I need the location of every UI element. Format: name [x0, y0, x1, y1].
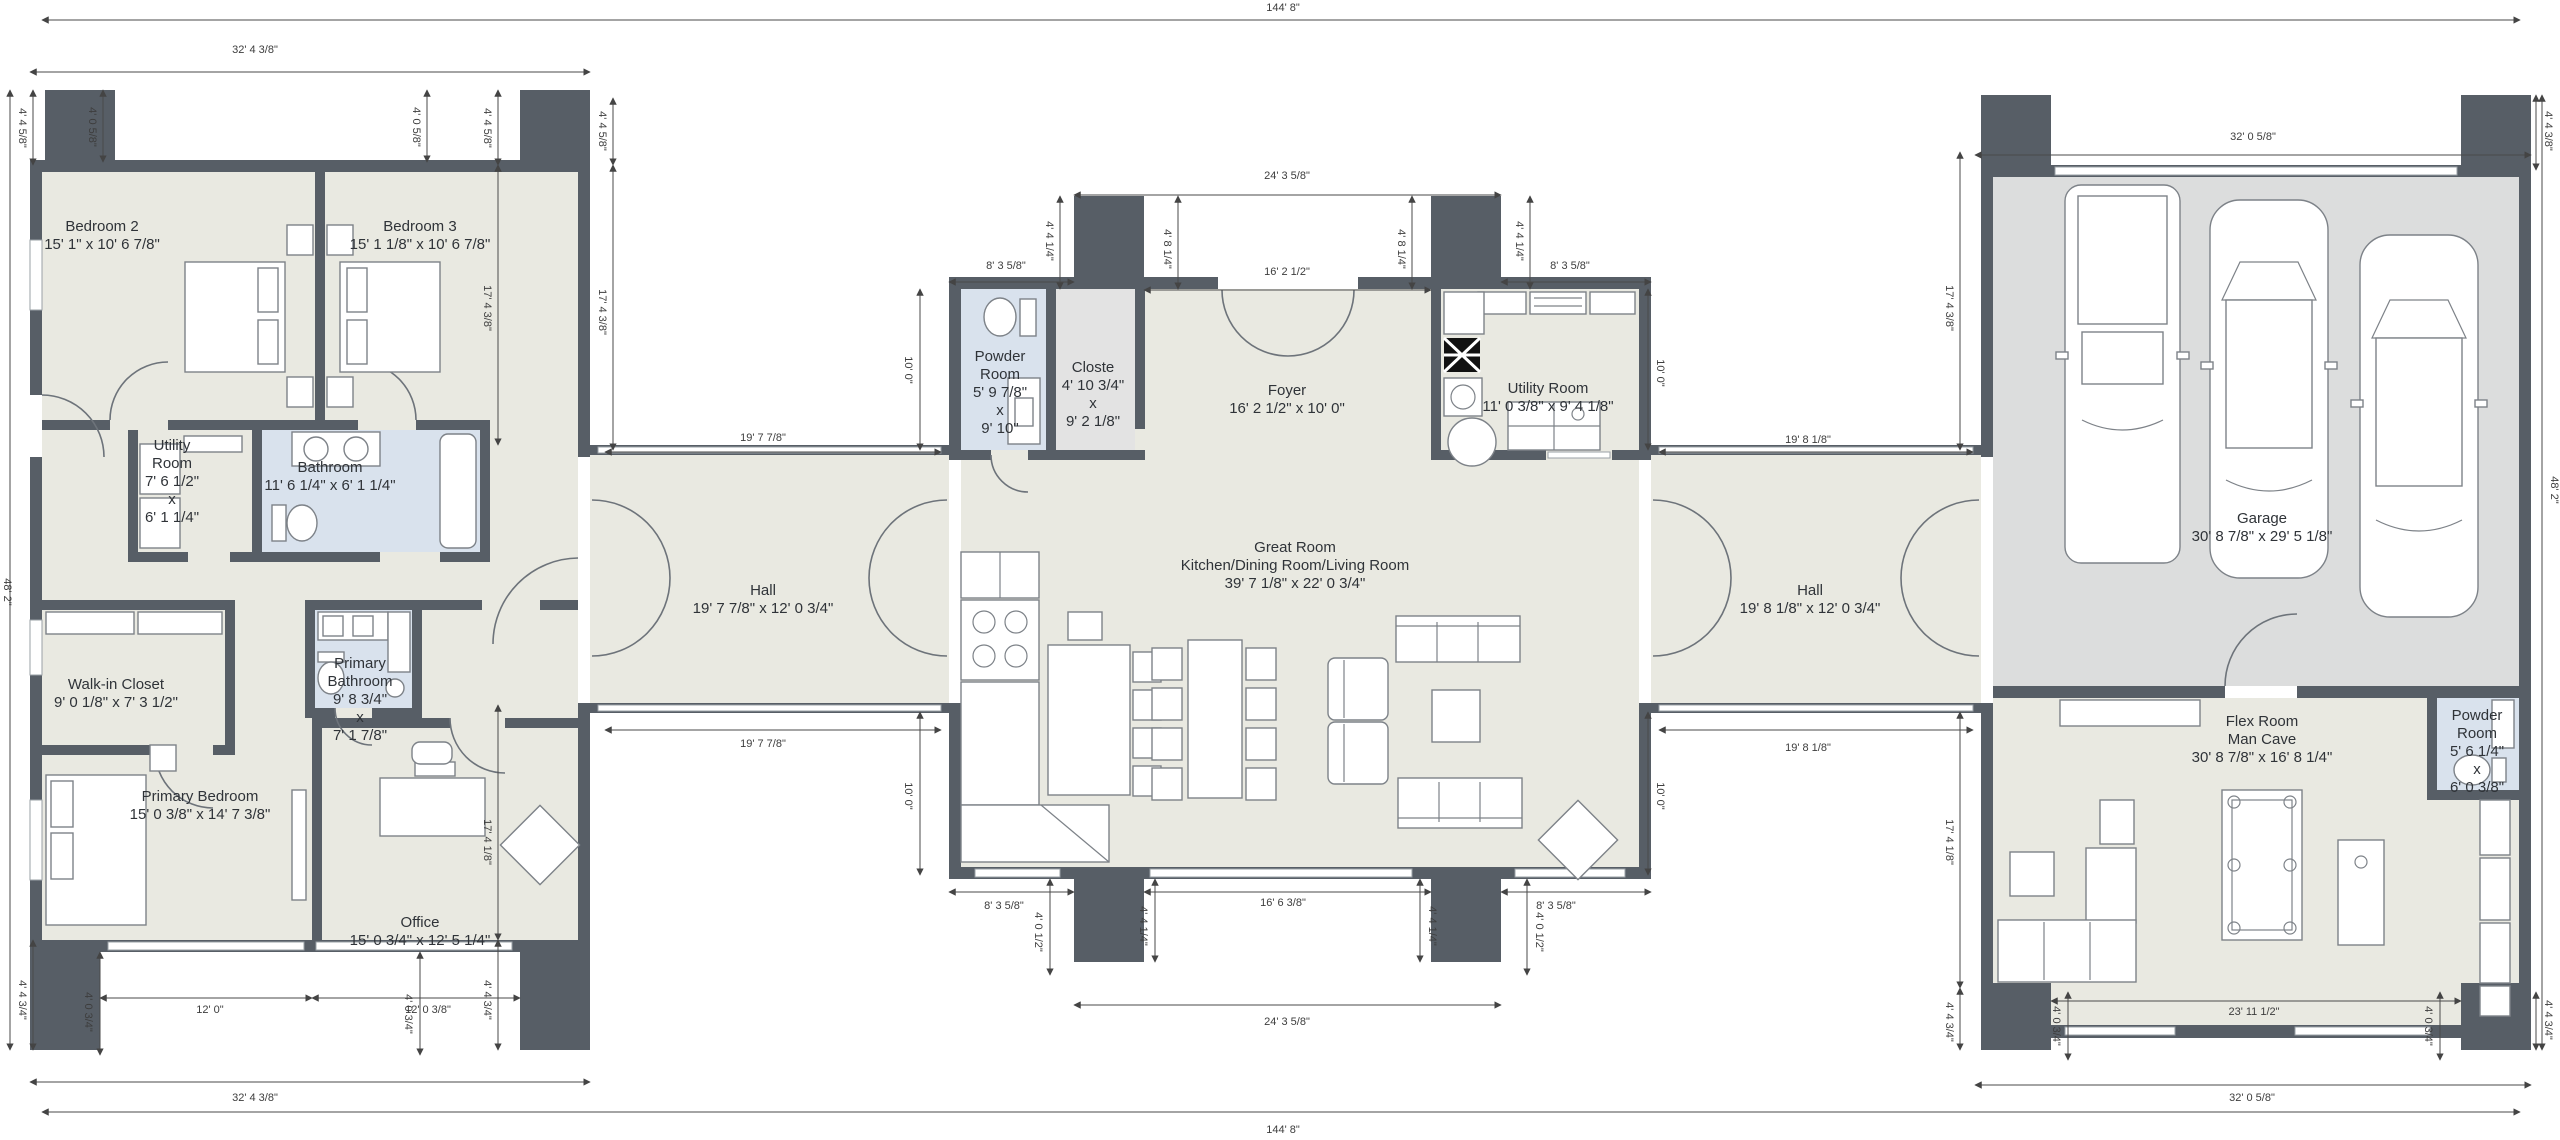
room-label-line: Walk-in Closet [54, 676, 178, 694]
window [30, 620, 42, 675]
toilet-tank [272, 505, 286, 541]
dimension-label: 48' 2" [2548, 476, 2560, 503]
car-truck [2056, 185, 2189, 563]
room-label-line: 15' 1" x 10' 6 7/8" [44, 236, 160, 254]
dimension-label: 4' 4 3/4" [16, 980, 28, 1020]
car-sedan [2351, 235, 2487, 617]
dimension-label: 19' 8 1/8" [1785, 434, 1831, 446]
island [1048, 645, 1130, 795]
room-label-line: Primary Bedroom [130, 788, 271, 806]
dimension-label: 4' 0 3/4" [2422, 1006, 2434, 1046]
room-label-line: 6' 0 3/8" [2450, 779, 2504, 797]
room-label-flex-room: Flex RoomMan Cave30' 8 7/8" x 16' 8 1/4" [2192, 713, 2333, 767]
room-label-line: x [1062, 395, 1124, 413]
stool [1068, 612, 1102, 640]
room-label-bathroom: Bathroom11' 6 1/4" x 6' 1 1/4" [264, 459, 395, 495]
room-label-powder-room-right: PowderRoom5' 6 1/4"x6' 0 3/8" [2450, 707, 2504, 797]
dimension-label: 4' 4 1/4" [1426, 906, 1438, 946]
sliding-door [1150, 869, 1412, 877]
room-label-line: 30' 8 7/8" x 16' 8 1/4" [2192, 749, 2333, 767]
room-label-line: Room [145, 455, 199, 473]
garage-door [2055, 167, 2457, 175]
dimension-label: 24' 3 5/8" [1264, 170, 1310, 182]
office-chair [412, 742, 452, 764]
dimension-label: 12' 0 3/8" [405, 1004, 451, 1016]
toilet-tank [1020, 299, 1036, 336]
chair [1246, 728, 1276, 760]
dining-table [1188, 640, 1242, 798]
nightstand [287, 225, 313, 255]
room-label-great-room: Great RoomKitchen/Dining Room/Living Roo… [1181, 539, 1409, 593]
room-label-line: 7' 6 1/2" [145, 473, 199, 491]
room-label-line: 9' 10" [973, 420, 1027, 438]
sofa [1396, 616, 1520, 662]
dimension-label: 4' 4 1/4" [1513, 221, 1525, 261]
room-label-primary-bathroom: PrimaryBathroom9' 8 3/4"x7' 1 7/8" [327, 655, 392, 745]
room-label-line: 5' 6 1/4" [2450, 743, 2504, 761]
floor-plan: Bedroom 215' 1" x 10' 6 7/8"Bedroom 315'… [0, 0, 2560, 1140]
toilet [984, 298, 1016, 336]
sink [304, 437, 328, 461]
room-label-utility-room-center: Utility Room11' 0 3/8" x 9' 4 1/8" [1482, 380, 1613, 416]
dimension-label: 4' 4 3/4" [1943, 1002, 1955, 1042]
sink [323, 616, 343, 636]
room-label-line: Utility [145, 437, 199, 455]
room-label-line: 19' 7 7/8" x 12' 0 3/4" [693, 600, 834, 618]
recliner [1328, 722, 1388, 784]
room-label-line: Flex Room [2192, 713, 2333, 731]
room-label-line: Room [2450, 725, 2504, 743]
room-label-line: Hall [1740, 582, 1881, 600]
landing-step [2060, 700, 2200, 726]
room-label-line: Hall [693, 582, 834, 600]
counter [961, 682, 1039, 805]
room-label-line: Powder [973, 348, 1027, 366]
room-label-line: 15' 0 3/8" x 14' 7 3/8" [130, 806, 271, 824]
hall-right-window [1659, 705, 1973, 711]
window [2065, 1027, 2175, 1035]
room-label-line: 6' 1 1/4" [145, 509, 199, 527]
room-label-line: 5' 9 7/8" [973, 384, 1027, 402]
room-label-line: 11' 0 3/8" x 9' 4 1/8" [1482, 398, 1613, 416]
dimension-label: 4' 8 1/4" [1161, 229, 1173, 269]
recliner [1328, 658, 1388, 720]
dimension-label: 17' 4 3/8" [1943, 285, 1955, 331]
dimension-label: 4' 4 5/8" [481, 108, 493, 148]
dimension-label: 8' 3 5/8" [984, 900, 1024, 912]
room-label-line: x [973, 402, 1027, 420]
sink [344, 437, 368, 461]
dimension-label: 24' 3 5/8" [1264, 1016, 1310, 1028]
nightstand [327, 377, 353, 407]
dimension-label: 4' 4 5/8" [16, 108, 28, 148]
dimension-label: 16' 6 3/8" [1260, 897, 1306, 909]
dimension-label: 4' 0 1/2" [1032, 912, 1044, 952]
room-label-bedroom-3: Bedroom 315' 1 1/8" x 10' 6 7/8" [350, 218, 491, 254]
side-table [2010, 852, 2054, 896]
dimension-label: 10' 0" [1654, 359, 1666, 386]
room-label-line: 19' 8 1/8" x 12' 0 3/4" [1740, 600, 1881, 618]
desk [380, 778, 485, 836]
wardrobe [46, 612, 134, 634]
room-label-line: 30' 8 7/8" x 29' 5 1/8" [2192, 528, 2333, 546]
sink [353, 616, 373, 636]
room-label-line: 11' 6 1/4" x 6' 1 1/4" [264, 477, 395, 495]
chair [1152, 648, 1182, 680]
room-label-line: Bathroom [264, 459, 395, 477]
chair [1246, 648, 1276, 680]
sofa [1398, 778, 1522, 828]
room-label-line: x [2450, 761, 2504, 779]
dimension-label: 4' 0 3/4" [82, 992, 94, 1032]
room-label-line: Bathroom [327, 673, 392, 691]
room-label-line: Great Room [1181, 539, 1409, 557]
room-label-walk-in-closet: Walk-in Closet9' 0 1/8" x 7' 3 1/2" [54, 676, 178, 712]
dresser [292, 790, 306, 900]
nightstand [150, 745, 176, 771]
dimension-label: 4' 4 5/8" [596, 111, 608, 151]
room-label-line: Room [973, 366, 1027, 384]
chair [1152, 728, 1182, 760]
dimension-label: 4' 4 3/8" [2542, 111, 2554, 151]
dimension-label: 10' 0" [902, 356, 914, 383]
cabinet [2480, 858, 2510, 920]
room-label-hall-left: Hall19' 7 7/8" x 12' 0 3/4" [693, 582, 834, 618]
washer [1444, 378, 1482, 416]
coffee-table [1432, 690, 1480, 742]
sectional-sofa [1998, 920, 2136, 982]
room-label-line: Man Cave [2192, 731, 2333, 749]
room-label-line: Kitchen/Dining Room/Living Room [1181, 557, 1409, 575]
room-label-line: 39' 7 1/8" x 22' 0 3/4" [1181, 575, 1409, 593]
room-label-line: Office [350, 914, 491, 932]
chair [1246, 768, 1276, 800]
dimension-label: 10' 0" [902, 782, 914, 809]
nightstand [287, 377, 313, 407]
sliding-door [2295, 1027, 2430, 1035]
room-label-line: Utility Room [1482, 380, 1613, 398]
room-label-line: 4' 10 3/4" [1062, 377, 1124, 395]
water-heater [1448, 418, 1496, 466]
room-label-powder-room-center: PowderRoom5' 9 7/8"x9' 10" [973, 348, 1027, 438]
room-label-line: x [145, 491, 199, 509]
room-label-line: x [327, 709, 392, 727]
room-label-foyer: Foyer16' 2 1/2" x 10' 0" [1229, 382, 1345, 418]
dimension-label: 4' 0 3/4" [2050, 1006, 2062, 1046]
cabinet [2480, 923, 2510, 983]
dimension-label: 32' 0 5/8" [2229, 1092, 2275, 1104]
dimension-label: 19' 7 7/8" [740, 432, 786, 444]
room-label-line: Bedroom 2 [44, 218, 160, 236]
range [961, 600, 1039, 680]
dimension-label: 23' 11 1/2" [2228, 1006, 2279, 1018]
window [30, 800, 42, 880]
dimension-label: 8' 3 5/8" [1550, 260, 1590, 272]
dimension-label: 12' 0" [196, 1004, 223, 1016]
dimension-label: 16' 2 1/2" [1264, 266, 1310, 278]
chair [1152, 688, 1182, 720]
pool-table [2222, 790, 2302, 940]
dimension-label: 144' 8" [1266, 1124, 1300, 1136]
room-label-line: 15' 1 1/8" x 10' 6 7/8" [350, 236, 491, 254]
dimension-label: 4' 4 3/4" [2542, 1000, 2554, 1040]
hall-left-window [598, 705, 941, 711]
room-label-line: 15' 0 3/4" x 12' 5 1/4" [350, 932, 491, 950]
dimension-label: 8' 3 5/8" [986, 260, 1026, 272]
dimension-label: 32' 4 3/8" [232, 1092, 278, 1104]
dimension-label: 17' 4 1/8" [1943, 819, 1955, 865]
dimension-label: 144' 8" [1266, 2, 1300, 14]
room-label-line: 7' 1 7/8" [327, 727, 392, 745]
room-label-line: 9' 0 1/8" x 7' 3 1/2" [54, 694, 178, 712]
dimension-label: 32' 0 5/8" [2230, 131, 2276, 143]
dimension-label: 19' 8 1/8" [1785, 742, 1831, 754]
entry-door-gap [30, 395, 42, 457]
room-label-utility-room-left: UtilityRoom7' 6 1/2"x6' 1 1/4" [145, 437, 199, 527]
dimension-label: 17' 4 3/8" [596, 289, 608, 335]
room-label-closte: Closte4' 10 3/4"x9' 2 1/8" [1062, 359, 1124, 431]
dimension-label: 4' 4 1/4" [1137, 906, 1149, 946]
dimension-label: 4' 0 1/2" [1533, 912, 1545, 952]
room-label-bedroom-2: Bedroom 215' 1" x 10' 6 7/8" [44, 218, 160, 254]
room-label-line: 9' 2 1/8" [1062, 413, 1124, 431]
room-label-line: 16' 2 1/2" x 10' 0" [1229, 400, 1345, 418]
dimension-label: 4' 4 3/4" [481, 980, 493, 1020]
dimension-label: 4' 8 1/4" [1395, 229, 1407, 269]
chair [2100, 800, 2134, 844]
dimension-label: 4' 0 5/8" [410, 107, 422, 147]
cabinet [2480, 986, 2510, 1016]
room-label-line: Powder [2450, 707, 2504, 725]
toilet [287, 505, 317, 541]
room-label-line: Foyer [1229, 382, 1345, 400]
dimension-label: 32' 4 3/8" [232, 44, 278, 56]
dimension-label: 17' 4 1/8" [481, 819, 493, 865]
foyer-door-gap [1218, 277, 1358, 289]
chair [1152, 768, 1182, 800]
room-label-line: Bedroom 3 [350, 218, 491, 236]
dimension-label: 19' 7 7/8" [740, 738, 786, 750]
room-label-line: Primary [327, 655, 392, 673]
dimension-label: 10' 0" [1654, 782, 1666, 809]
room-label-line: Garage [2192, 510, 2333, 528]
room-label-primary-bedroom: Primary Bedroom15' 0 3/8" x 14' 7 3/8" [130, 788, 271, 824]
room-label-hall-right: Hall19' 8 1/8" x 12' 0 3/4" [1740, 582, 1881, 618]
room-label-office: Office15' 0 3/4" x 12' 5 1/4" [350, 914, 491, 950]
dimension-label: 4' 0 5/8" [86, 107, 98, 147]
sliding-door [108, 942, 304, 950]
window [30, 240, 42, 310]
wardrobe [138, 612, 222, 634]
chair [1246, 688, 1276, 720]
bathtub [440, 434, 476, 548]
sliding-door [1548, 452, 1610, 458]
counter [961, 805, 1109, 862]
cabinet [2480, 800, 2510, 855]
room-label-garage: Garage30' 8 7/8" x 29' 5 1/8" [2192, 510, 2333, 546]
room-label-line: Closte [1062, 359, 1124, 377]
dimension-label: 17' 4 3/8" [481, 285, 493, 331]
dimension-label: 48' 2" [1, 578, 13, 605]
window [975, 869, 1060, 877]
dimension-label: 4' 4 1/4" [1043, 221, 1055, 261]
room-label-line: 9' 8 3/4" [327, 691, 392, 709]
sectional-sofa [2086, 848, 2136, 923]
dimension-label: 8' 3 5/8" [1536, 900, 1576, 912]
